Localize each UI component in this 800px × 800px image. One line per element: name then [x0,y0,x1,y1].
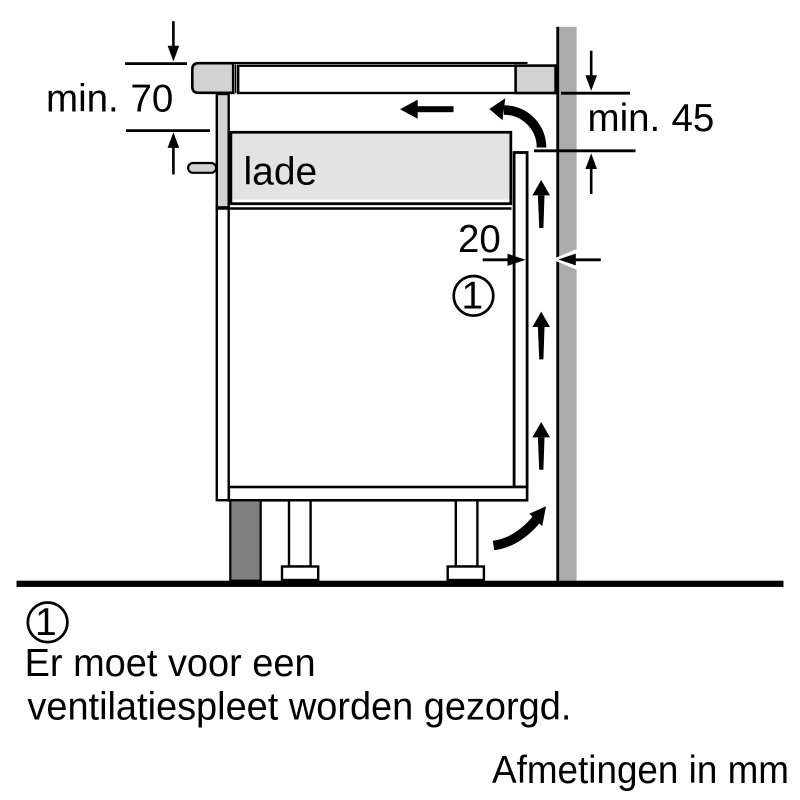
svg-text:1: 1 [462,274,484,317]
svg-text:ventilatiespleet worden gezorg: ventilatiespleet worden gezorgd. [27,686,571,729]
svg-text:20: 20 [458,218,501,261]
svg-text:lade: lade [244,150,318,193]
svg-text:70: 70 [131,77,174,120]
svg-text:min.: min. [46,77,119,120]
svg-text:Afmetingen in mm: Afmetingen in mm [492,749,789,792]
svg-text:1: 1 [35,601,57,644]
svg-text:45: 45 [672,97,715,140]
svg-text:Er moet voor een: Er moet voor een [25,642,316,685]
svg-text:min.: min. [588,97,661,140]
